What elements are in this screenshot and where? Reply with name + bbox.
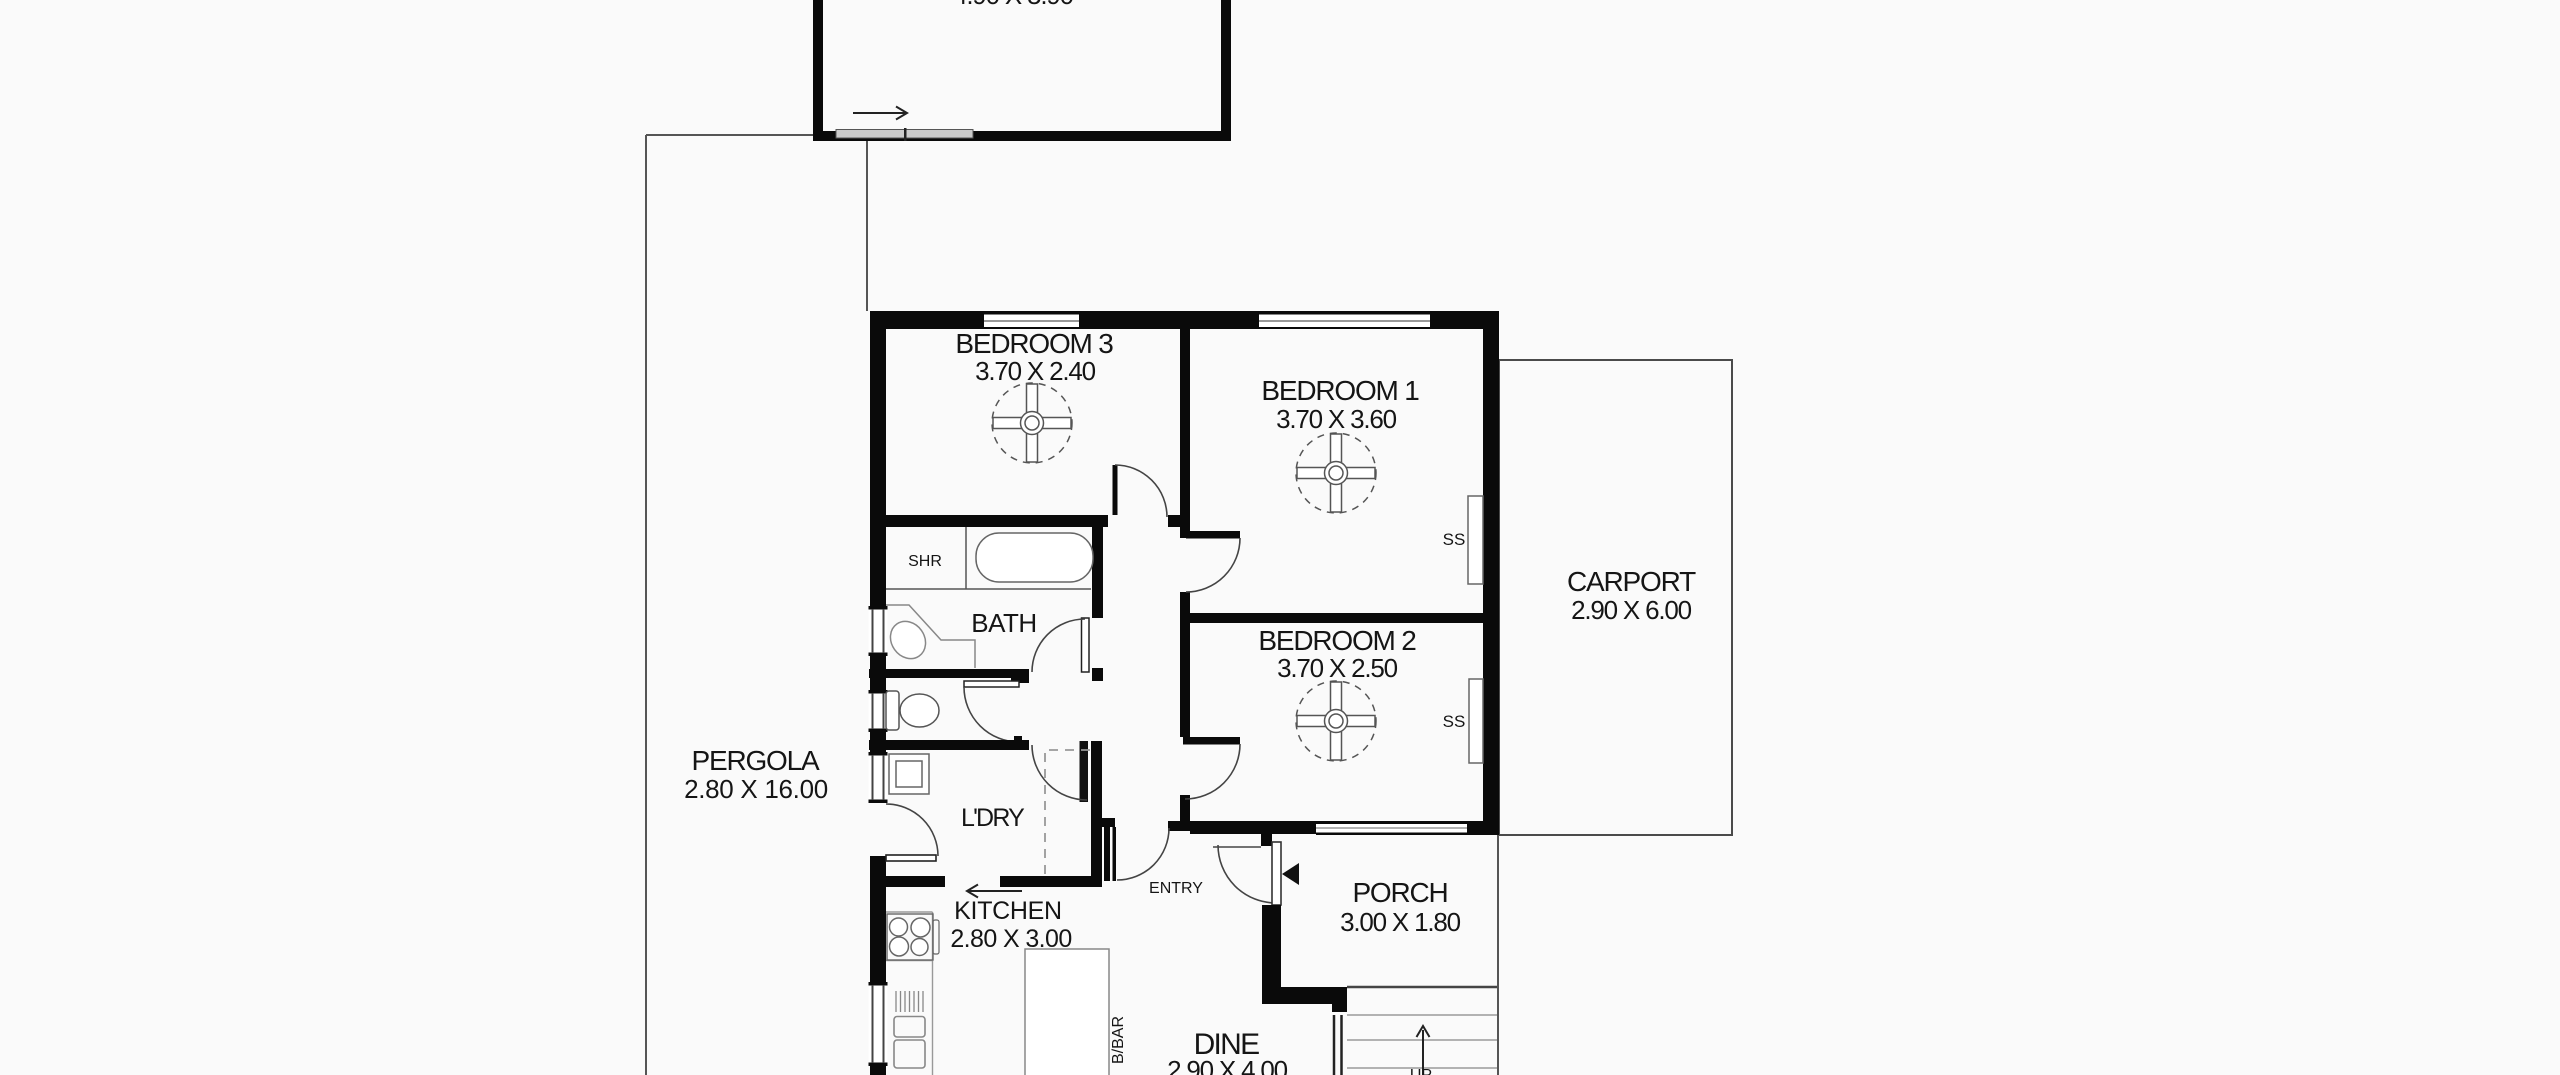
svg-text:PERGOLA: PERGOLA (692, 745, 821, 776)
svg-text:CARPORT: CARPORT (1567, 566, 1696, 597)
svg-text:2.90 X 6.00: 2.90 X 6.00 (1571, 595, 1692, 625)
svg-text:B/BAR: B/BAR (1110, 1016, 1127, 1064)
svg-text:2.90 X 4.00: 2.90 X 4.00 (1167, 1055, 1288, 1075)
svg-text:SS: SS (1443, 530, 1466, 549)
svg-text:BATH: BATH (971, 608, 1036, 638)
svg-text:BEDROOM 3: BEDROOM 3 (955, 328, 1113, 359)
svg-text:3.00 X 1.80: 3.00 X 1.80 (1340, 907, 1461, 937)
svg-text:4.90 X 5.90: 4.90 X 5.90 (953, 0, 1074, 10)
svg-text:BEDROOM 1: BEDROOM 1 (1261, 375, 1419, 406)
svg-text:UP: UP (1410, 1067, 1432, 1075)
svg-text:PORCH: PORCH (1352, 877, 1447, 908)
svg-text:KITCHEN: KITCHEN (954, 897, 1062, 925)
svg-text:BEDROOM 2: BEDROOM 2 (1258, 625, 1416, 656)
svg-text:SHR: SHR (908, 553, 942, 570)
svg-text:3.70 X 2.40: 3.70 X 2.40 (975, 356, 1096, 386)
svg-text:SS: SS (1443, 712, 1466, 731)
svg-text:3.70 X 2.50: 3.70 X 2.50 (1277, 653, 1398, 683)
svg-text:2.80 X 16.00: 2.80 X 16.00 (684, 774, 828, 804)
svg-text:ENTRY: ENTRY (1149, 880, 1203, 897)
svg-text:3.70 X 3.60: 3.70 X 3.60 (1276, 404, 1397, 434)
svg-text:L'DRY: L'DRY (961, 804, 1025, 832)
